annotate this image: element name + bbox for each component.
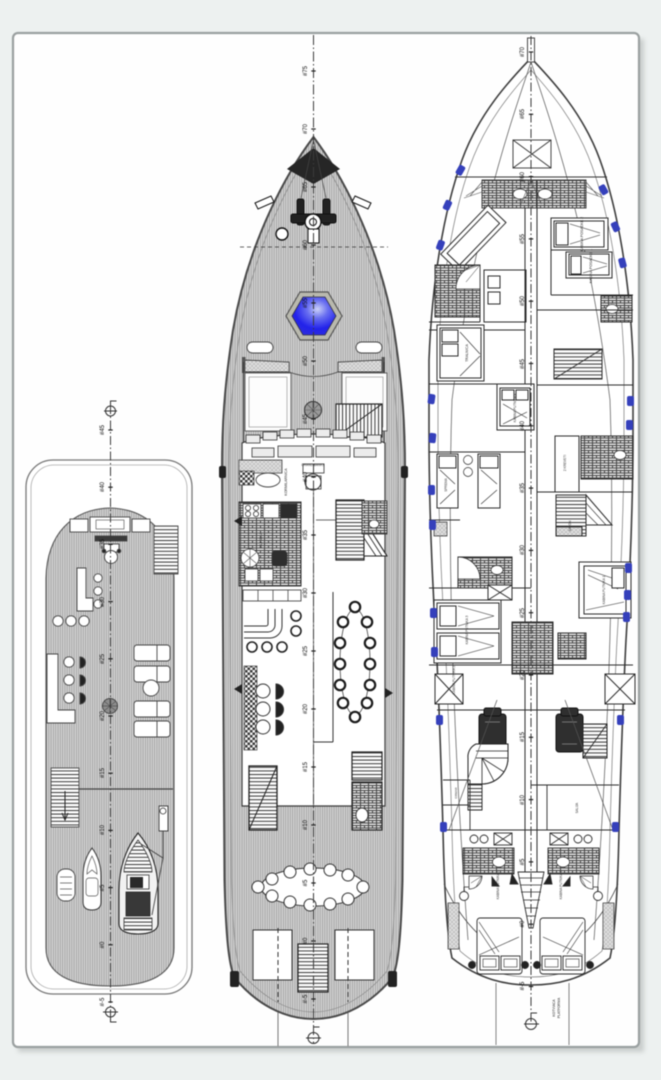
svg-text:KOTVIACA: KOTVIACA	[552, 999, 556, 1017]
svg-text:#0: #0	[520, 920, 526, 927]
svg-text:SALIJA: SALIJA	[575, 802, 579, 814]
svg-text:#30: #30	[100, 596, 106, 607]
svg-text:SALON: SALON	[568, 520, 572, 532]
svg-text:#60: #60	[303, 239, 309, 250]
svg-text:#0: #0	[303, 937, 309, 944]
svg-text:KABINA PUTNIKA 1: KABINA PUTNIKA 1	[602, 575, 606, 604]
svg-text:KABINA PUTNIKA 4: KABINA PUTNIKA 4	[513, 393, 517, 422]
svg-text:#-5: #-5	[520, 981, 526, 990]
svg-text:#30: #30	[303, 587, 309, 598]
svg-text:#20: #20	[100, 710, 106, 721]
svg-text:#75: #75	[303, 65, 309, 76]
svg-text:#55: #55	[303, 297, 309, 308]
svg-text:#50: #50	[303, 355, 309, 366]
svg-text:PLATFORMA: PLATFORMA	[557, 997, 561, 1018]
svg-text:TRALNICA: TRALNICA	[465, 344, 469, 362]
svg-text:#65: #65	[520, 108, 526, 119]
svg-text:#45: #45	[520, 358, 526, 369]
svg-text:#45: #45	[100, 424, 106, 435]
svg-text:#55: #55	[520, 233, 526, 244]
svg-text:#25: #25	[100, 653, 106, 664]
svg-text:#-5: #-5	[100, 997, 106, 1006]
svg-text:#35: #35	[303, 529, 309, 540]
svg-text:#40: #40	[100, 481, 106, 492]
svg-text:SPREMA: SPREMA	[444, 477, 448, 491]
svg-text:ORMAR: ORMAR	[454, 787, 458, 799]
svg-text:KUHINJA: KUHINJA	[259, 532, 263, 548]
svg-text:#35: #35	[100, 538, 106, 549]
svg-text:KABINA PUTNIKA 3: KABINA PUTNIKA 3	[465, 615, 469, 644]
svg-text:#50: #50	[520, 295, 526, 306]
svg-text:#0: #0	[100, 941, 106, 948]
svg-text:#30: #30	[520, 544, 526, 555]
svg-text:2 KREVETI: 2 KREVETI	[563, 455, 567, 471]
svg-text:#20: #20	[303, 703, 309, 714]
svg-text:#5: #5	[520, 858, 526, 865]
svg-text:#-5: #-5	[303, 994, 309, 1003]
svg-text:KABINA PUTNIKA 2: KABINA PUTNIKA 2	[452, 665, 456, 694]
svg-text:#5: #5	[303, 879, 309, 886]
svg-text:#40: #40	[520, 420, 526, 431]
svg-text:#10: #10	[520, 794, 526, 805]
svg-text:#10: #10	[100, 824, 106, 835]
svg-text:#40: #40	[303, 471, 309, 482]
svg-text:#25: #25	[520, 607, 526, 618]
svg-text:#70: #70	[303, 123, 309, 134]
svg-text:KORMILARNICA: KORMILARNICA	[284, 468, 288, 496]
svg-text:#15: #15	[520, 731, 526, 742]
svg-text:#45: #45	[303, 413, 309, 424]
svg-text:#60: #60	[520, 171, 526, 182]
svg-text:#10: #10	[303, 819, 309, 830]
svg-text:KABINA PUTNIKA 6: KABINA PUTNIKA 6	[559, 870, 563, 899]
svg-text:KABINA POSADKE 1: KABINA POSADKE 1	[589, 249, 593, 283]
svg-text:#5: #5	[100, 884, 106, 891]
svg-text:#65: #65	[303, 181, 309, 192]
svg-text:#15: #15	[303, 761, 309, 772]
svg-text:#15: #15	[100, 767, 106, 778]
svg-text:#25: #25	[303, 645, 309, 656]
svg-text:#35: #35	[520, 482, 526, 493]
svg-text:KABINA POSADKE 2: KABINA POSADKE 2	[580, 217, 584, 251]
svg-text:KABINA PUTNIKA 5: KABINA PUTNIKA 5	[496, 870, 500, 899]
svg-text:#20: #20	[520, 669, 526, 680]
svg-text:#70: #70	[520, 46, 526, 57]
